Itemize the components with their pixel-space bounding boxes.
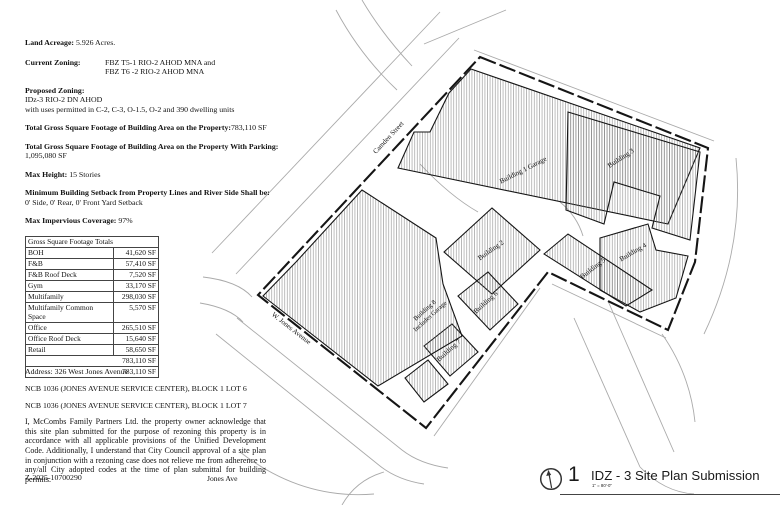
gsf-total-value: 783,110 SF <box>26 355 159 366</box>
proposed-zoning-block: Proposed Zoning: IDz-3 RIO-2 DN AHOD wit… <box>25 86 287 115</box>
gsf-use: Multifamily <box>26 291 114 302</box>
zoning-info-panel: Land Acreage: 5.926 Acres. Current Zonin… <box>25 38 287 378</box>
gsf-use: Office Roof Deck <box>26 333 114 344</box>
table-row: Office Roof Deck15,640 SF <box>26 333 159 344</box>
site-plan-sheet: Building 1 Garage Building 2 Building 3 … <box>0 0 780 505</box>
address-line: Address: 326 West Jones Avenue <box>25 367 325 376</box>
table-row: Multifamily298,030 SF <box>26 291 159 302</box>
table-row: Office265,510 SF <box>26 322 159 333</box>
setback-block: Minimum Building Setback from Property L… <box>25 188 287 207</box>
proposed-zoning-value-line2: with uses permitted in C-2, C-3, O-1.5, … <box>25 105 234 114</box>
gsf-total-row: 783,110 SF <box>26 355 159 366</box>
total-gsf-value: 783,110 SF <box>231 123 267 132</box>
gsf-use: F&B <box>26 258 114 269</box>
setback-label: Minimum Building Setback from Property L… <box>25 188 270 197</box>
max-height-label: Max Height: <box>25 170 67 179</box>
table-row: Multifamily Common Space5,570 SF <box>26 302 159 322</box>
table-row: Gym33,170 SF <box>26 280 159 291</box>
setback-value: 0' Side, 0' Rear, 0' Front Yard Setback <box>25 198 143 207</box>
building-8-footprint <box>263 190 462 386</box>
gsf-use: F&B Roof Deck <box>26 269 114 280</box>
table-row: Retail58,650 SF <box>26 344 159 355</box>
gsf-use: Multifamily Common Space <box>26 302 114 322</box>
sheet-number: 1 <box>568 463 580 487</box>
north-arrow-icon <box>538 466 564 492</box>
table-row: BOH41,620 SF <box>26 247 159 258</box>
impervious-line: Max Impervious Coverage: 97% <box>25 216 287 226</box>
gsf-table-header-row: Gross Square Footage Totals <box>26 236 159 247</box>
total-gsf-parking-label: Total Gross Square Footage of Building A… <box>25 142 278 151</box>
max-height-line: Max Height: 15 Stories <box>25 170 287 180</box>
total-gsf-parking-line: Total Gross Square Footage of Building A… <box>25 142 287 161</box>
building-3-footprint <box>566 112 700 240</box>
current-zoning-label: Current Zoning: <box>25 58 105 77</box>
current-zoning-value: FBZ T5-1 RIO-2 AHOD MNA and FBZ T6 -2 RI… <box>105 58 215 77</box>
gsf-value: 265,510 SF <box>114 322 159 333</box>
gsf-table: Gross Square Footage Totals BOH41,620 SF… <box>25 236 159 378</box>
gsf-use: Gym <box>26 280 114 291</box>
land-acreage-label: Land Acreage: <box>25 38 74 47</box>
gsf-value: 15,640 SF <box>114 333 159 344</box>
max-height-value: 15 Stories <box>69 170 100 179</box>
gsf-use: BOH <box>26 247 114 258</box>
ncb-lot7-line: NCB 1036 (JONES AVENUE SERVICE CENTER), … <box>25 401 325 410</box>
proposed-zoning-value-line1: IDz-3 RIO-2 DN AHOD <box>25 95 102 104</box>
gsf-value: 57,410 SF <box>114 258 159 269</box>
gsf-use: Office <box>26 322 114 333</box>
title-block-rule <box>560 494 780 495</box>
total-gsf-line: Total Gross Square Footage of Building A… <box>25 123 287 133</box>
address-block: Address: 326 West Jones Avenue NCB 1036 … <box>25 367 325 410</box>
gsf-value: 33,170 SF <box>114 280 159 291</box>
impervious-label: Max Impervious Coverage: <box>25 216 116 225</box>
jones-ave-note: Jones Ave <box>207 474 237 483</box>
gsf-value: 298,030 SF <box>114 291 159 302</box>
sheet-title: IDZ - 3 Site Plan Submission <box>591 468 760 483</box>
gsf-use: Retail <box>26 344 114 355</box>
sheet-scale: 1" = 80'-0" <box>592 484 612 488</box>
case-number: Z-2025-10700290 <box>25 473 82 482</box>
gsf-value: 7,520 SF <box>114 269 159 280</box>
total-gsf-label: Total Gross Square Footage of Building A… <box>25 123 231 132</box>
table-row: F&B57,410 SF <box>26 258 159 269</box>
gsf-table-title: Gross Square Footage Totals <box>26 236 159 247</box>
ncb-lot6-line: NCB 1036 (JONES AVENUE SERVICE CENTER), … <box>25 384 325 393</box>
total-gsf-parking-value: 1,095,080 SF <box>25 151 67 160</box>
impervious-value: 97% <box>118 216 132 225</box>
current-zoning-value-line1: FBZ T5-1 RIO-2 AHOD MNA and <box>105 58 215 67</box>
current-zoning-line: Current Zoning: FBZ T5-1 RIO-2 AHOD MNA … <box>25 58 287 77</box>
land-acreage-line: Land Acreage: 5.926 Acres. <box>25 38 287 48</box>
gsf-value: 58,650 SF <box>114 344 159 355</box>
current-zoning-value-line2: FBZ T6 -2 RIO-2 AHOD MNA <box>105 67 204 76</box>
title-block: 1 IDZ - 3 Site Plan Submission 1" = 80'-… <box>535 462 780 502</box>
table-row: F&B Roof Deck7,520 SF <box>26 269 159 280</box>
gsf-value: 5,570 SF <box>114 302 159 322</box>
land-acreage-value: 5.926 Acres. <box>76 38 115 47</box>
proposed-zoning-label: Proposed Zoning: <box>25 86 84 95</box>
gsf-value: 41,620 SF <box>114 247 159 258</box>
